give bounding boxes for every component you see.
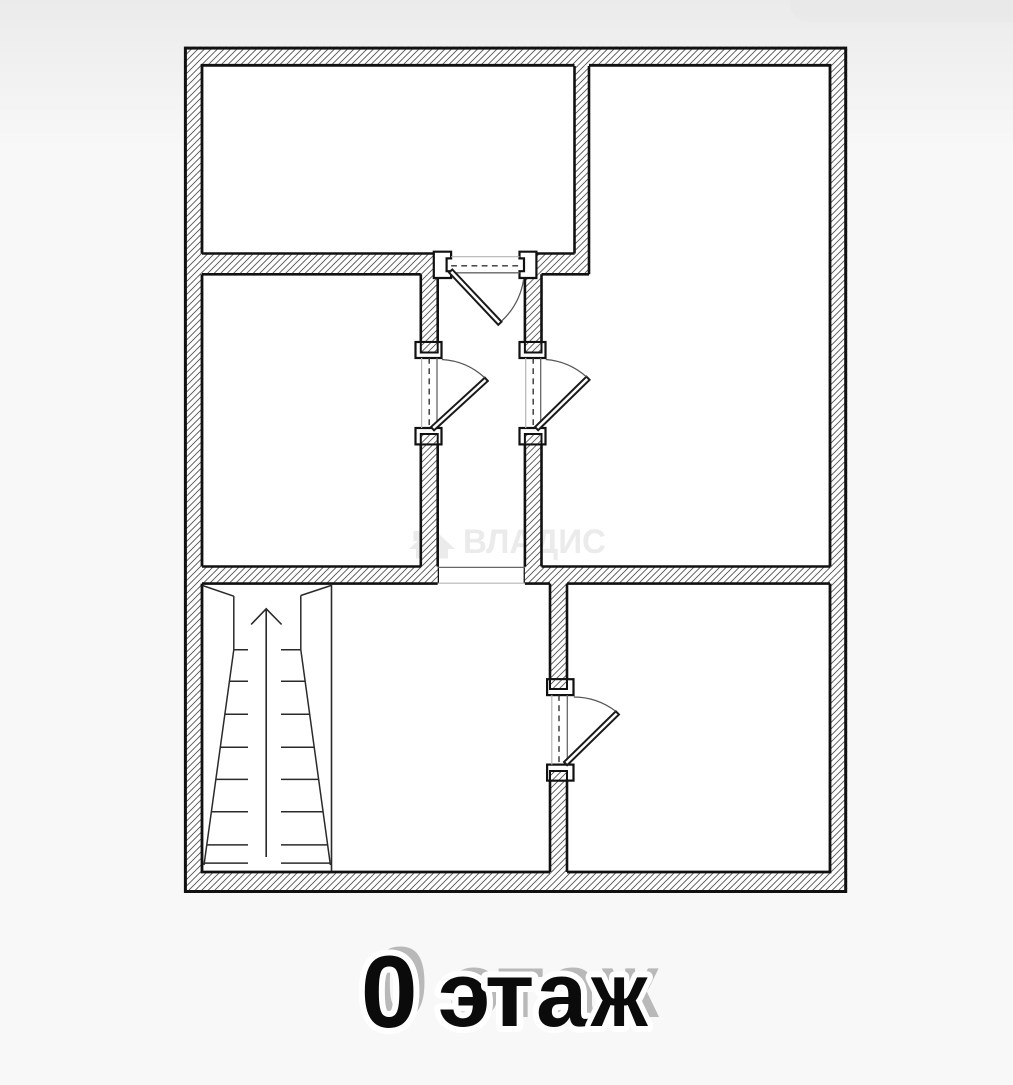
- svg-text:т: т: [485, 942, 535, 1046]
- svg-text:э: э: [438, 943, 491, 1046]
- svg-text:ж: ж: [590, 944, 648, 1047]
- svg-text:а: а: [536, 944, 588, 1046]
- svg-text:0: 0: [361, 934, 418, 1049]
